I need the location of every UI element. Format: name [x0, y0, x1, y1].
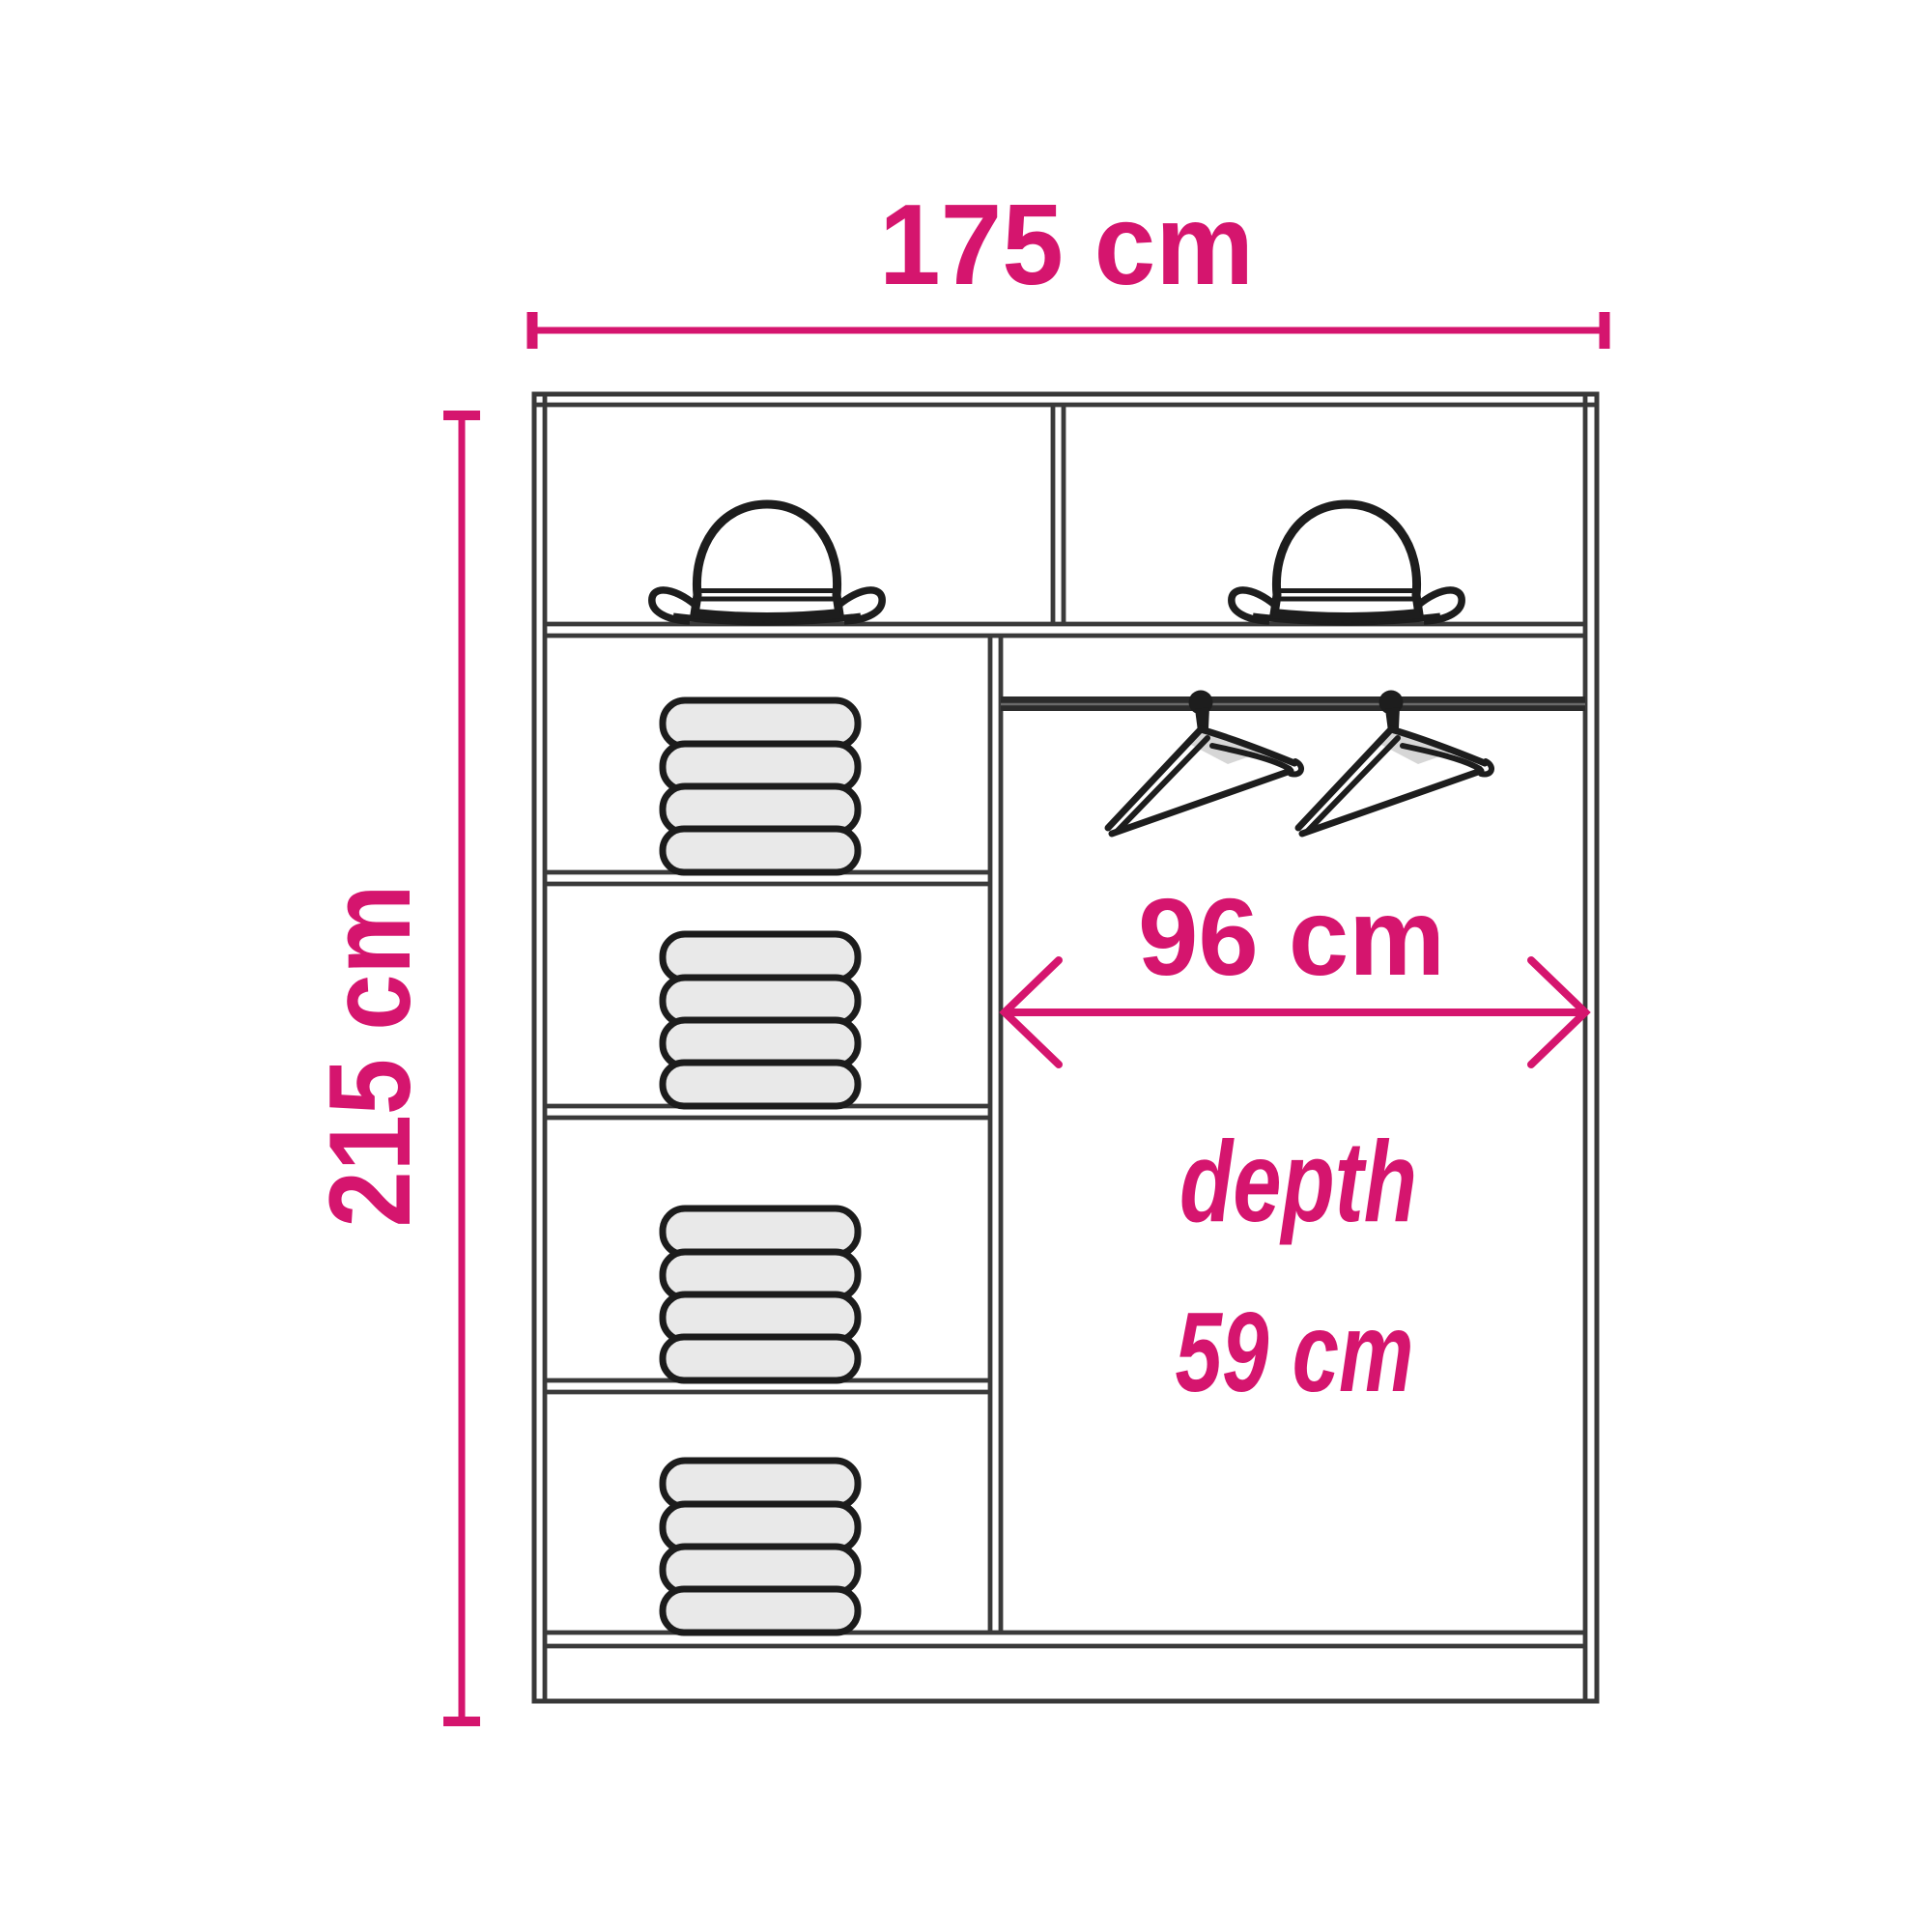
svg-text:59 cm: 59 cm: [1176, 1289, 1414, 1415]
svg-text:175 cm: 175 cm: [879, 181, 1254, 309]
svg-text:depth: depth: [1179, 1118, 1417, 1246]
svg-text:215 cm: 215 cm: [305, 885, 435, 1228]
svg-text:96 cm: 96 cm: [1138, 876, 1445, 998]
